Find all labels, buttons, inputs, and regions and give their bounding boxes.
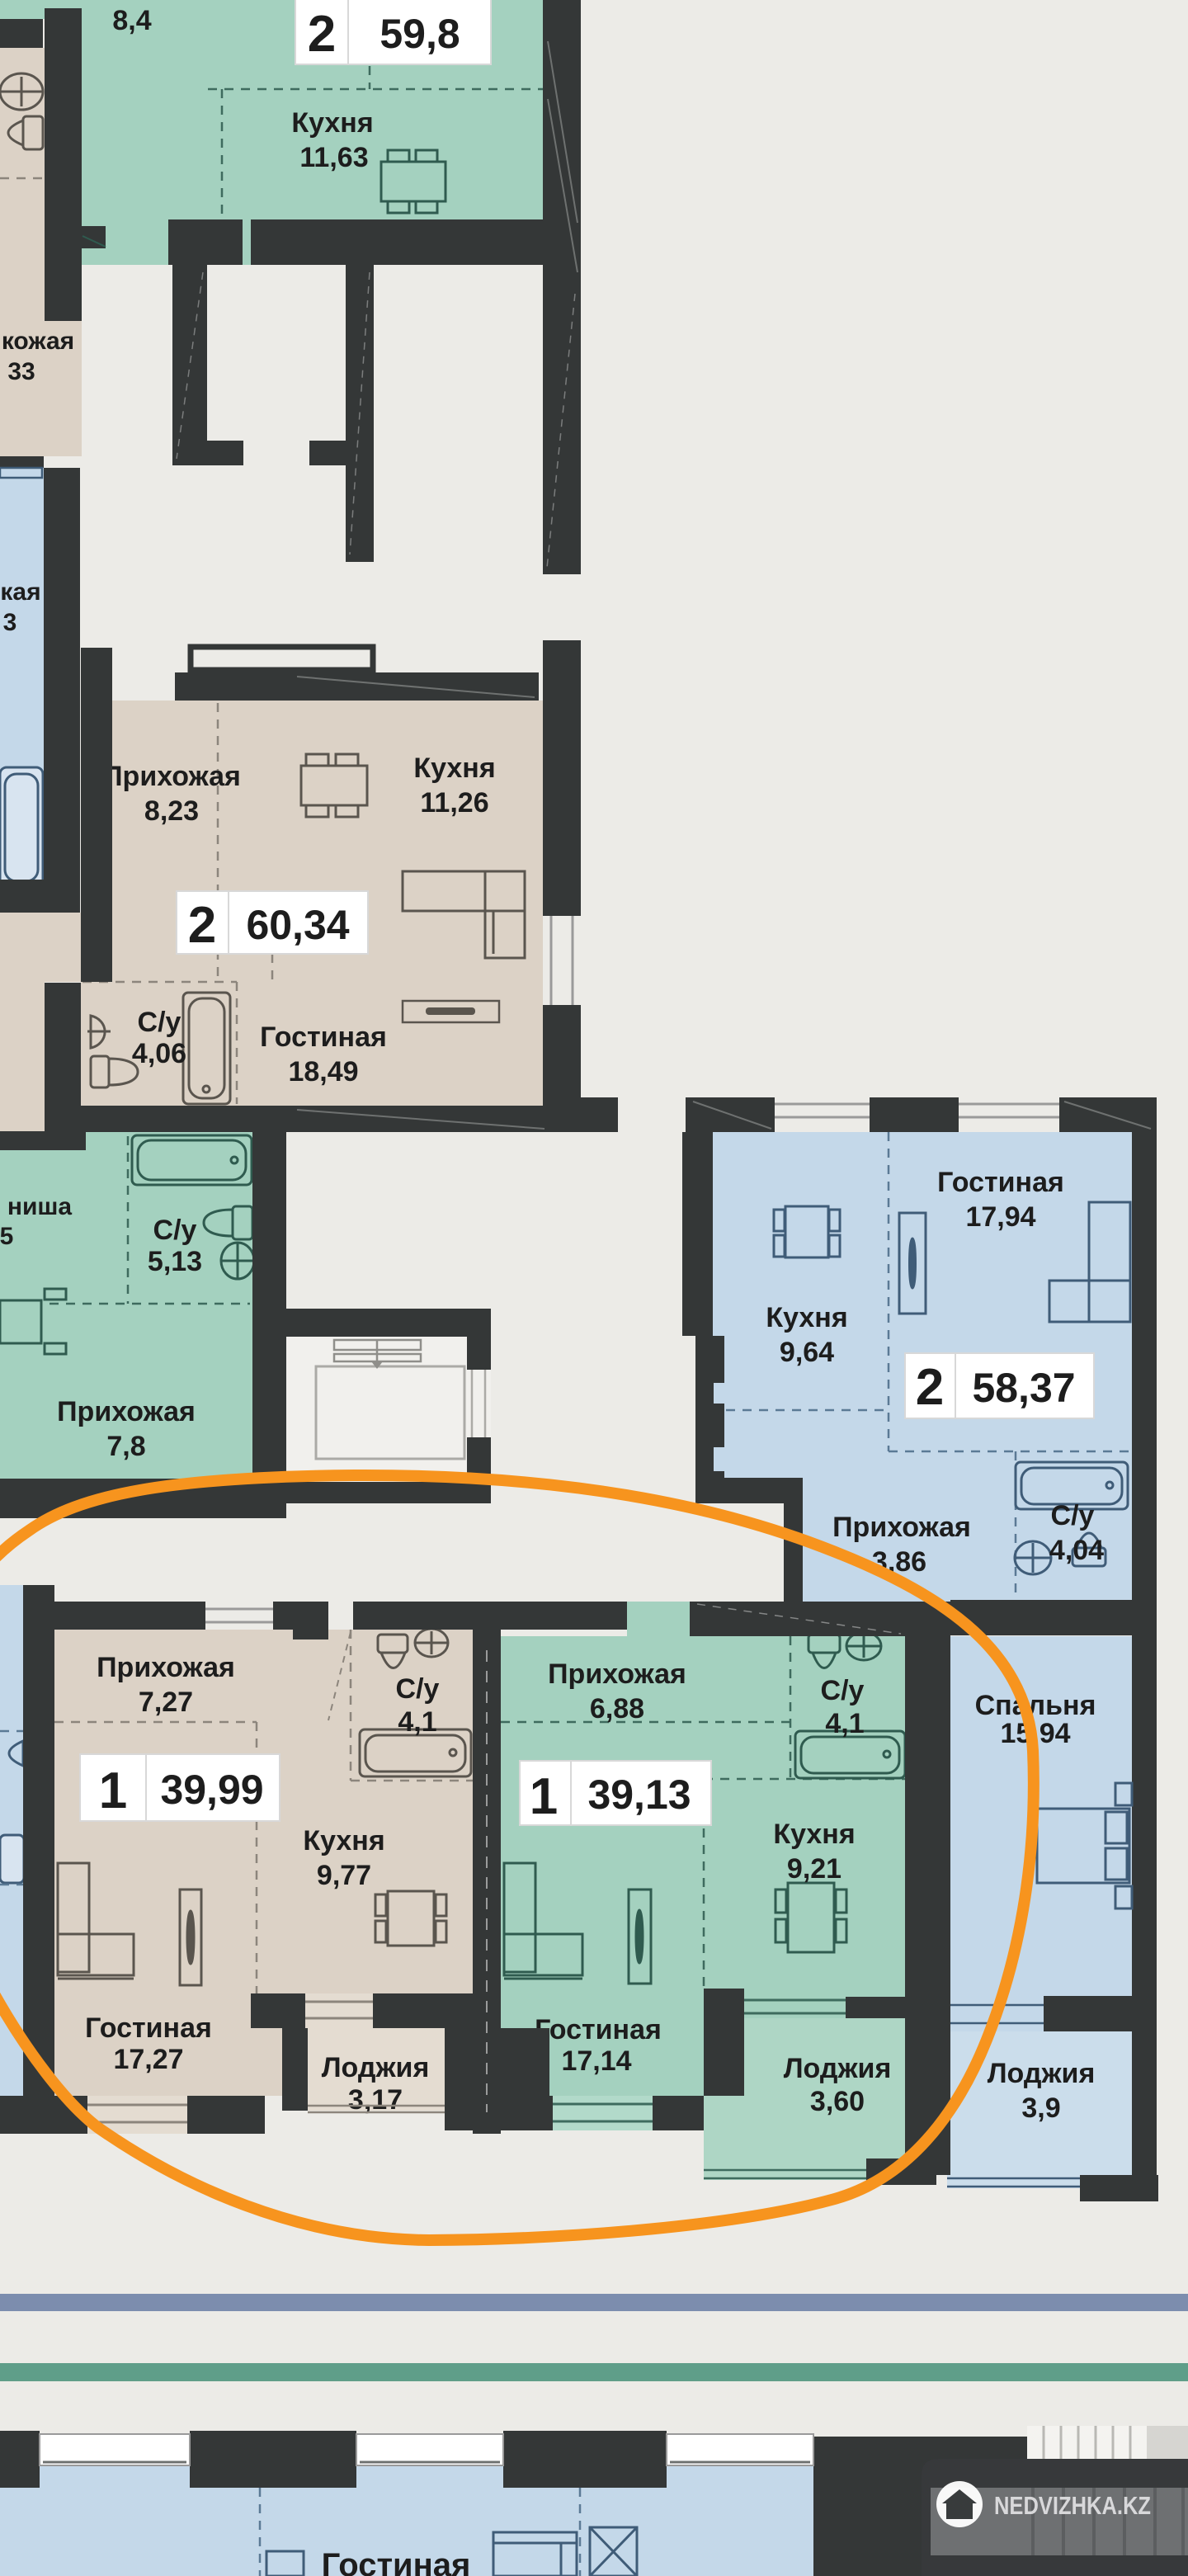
svg-text:Кухня: Кухня [766,1302,847,1333]
svg-text:3,60: 3,60 [810,2086,865,2117]
svg-text:9,77: 9,77 [317,1860,371,1891]
svg-text:4,04: 4,04 [1049,1535,1104,1566]
svg-text:С/у: С/у [396,1673,440,1705]
svg-text:Кухня: Кухня [303,1825,384,1857]
svg-text:8,4: 8,4 [112,5,151,36]
svg-text:С/у: С/у [138,1007,181,1038]
svg-text:кожая: кожая [2,328,74,355]
svg-text:58,37: 58,37 [972,1365,1075,1411]
svg-text:2: 2 [308,6,336,63]
svg-text:39,99: 39,99 [160,1767,263,1813]
svg-text:кая: кая [0,578,40,606]
svg-text:Гостиная: Гостиная [260,1021,387,1053]
svg-text:Кухня: Кухня [773,1819,855,1850]
svg-text:17,14: 17,14 [561,2045,631,2077]
svg-text:39,13: 39,13 [587,1772,691,1818]
svg-text:4,1: 4,1 [825,1708,864,1739]
svg-text:4,1: 4,1 [398,1706,436,1738]
svg-text:8,23: 8,23 [144,795,199,827]
svg-text:NEDVIZHKA.KZ: NEDVIZHKA.KZ [994,2491,1151,2520]
svg-text:Спальня: Спальня [975,1690,1096,1721]
svg-text:С/у: С/у [821,1675,865,1706]
svg-text:ниша: ниша [7,1193,73,1220]
svg-text:Лоджия: Лоджия [988,2058,1096,2089]
svg-text:Прихожая: Прихожая [97,1652,235,1683]
svg-text:7,8: 7,8 [106,1431,145,1462]
svg-text:5: 5 [0,1223,13,1250]
svg-text:Лоджия: Лоджия [322,2052,430,2083]
svg-text:2: 2 [188,897,216,954]
svg-text:6,88: 6,88 [590,1693,644,1724]
svg-text:7,27: 7,27 [139,1687,193,1718]
svg-text:11,63: 11,63 [299,142,368,173]
svg-text:3,17: 3,17 [348,2084,403,2116]
svg-text:Гостиная: Гостиная [535,2014,662,2045]
svg-text:9,21: 9,21 [787,1853,841,1885]
svg-text:Прихожая: Прихожая [548,1658,686,1690]
svg-text:Гостиная: Гостиная [322,2547,471,2576]
svg-text:9,64: 9,64 [780,1337,834,1368]
svg-text:1: 1 [530,1768,558,1825]
svg-text:2: 2 [916,1359,944,1416]
svg-text:59,8: 59,8 [379,11,460,57]
svg-text:Лоджия: Лоджия [784,2053,892,2084]
svg-text:Прихожая: Прихожая [102,761,241,792]
svg-text:Кухня: Кухня [413,753,495,784]
svg-text:3,9: 3,9 [1021,2092,1060,2124]
svg-text:3: 3 [3,609,17,636]
svg-text:1: 1 [99,1762,127,1819]
svg-text:17,94: 17,94 [965,1201,1035,1233]
svg-text:С/у: С/у [153,1215,197,1246]
svg-text:17,27: 17,27 [113,2044,183,2075]
svg-text:4,06: 4,06 [132,1038,186,1069]
svg-text:60,34: 60,34 [246,902,349,948]
svg-text:Гостиная: Гостиная [937,1167,1064,1198]
svg-text:33: 33 [7,358,35,385]
svg-text:18,49: 18,49 [288,1056,358,1087]
svg-text:Гостиная: Гостиная [85,2012,212,2044]
svg-text:С/у: С/у [1051,1500,1095,1531]
svg-text:Прихожая: Прихожая [832,1512,971,1543]
svg-text:5,13: 5,13 [148,1246,202,1277]
svg-text:11,26: 11,26 [420,787,488,819]
svg-text:Прихожая: Прихожая [57,1396,196,1427]
svg-text:Кухня: Кухня [291,107,373,139]
